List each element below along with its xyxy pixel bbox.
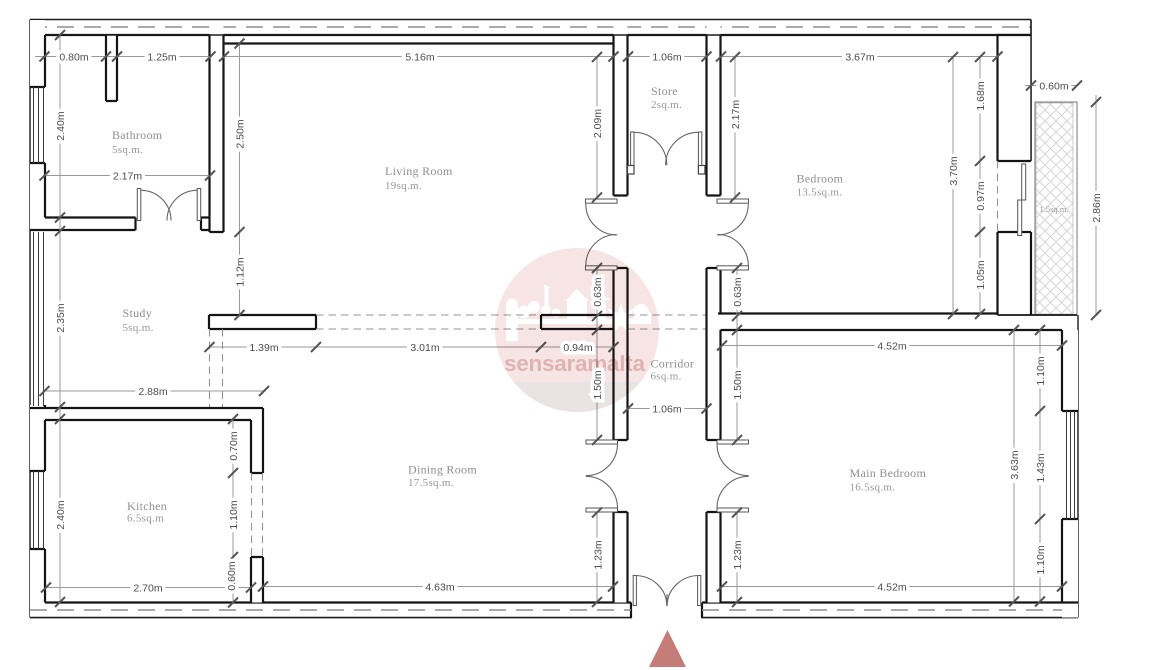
svg-text:1.12m: 1.12m	[234, 257, 246, 286]
svg-text:4.63m: 4.63m	[425, 581, 454, 593]
svg-text:Living Room: Living Room	[385, 164, 453, 178]
svg-text:Corridor: Corridor	[651, 357, 695, 371]
svg-text:1.25m: 1.25m	[147, 51, 176, 63]
svg-text:0.63m: 0.63m	[732, 277, 744, 306]
svg-text:0.60m: 0.60m	[1039, 80, 1068, 92]
svg-text:Bedroom: Bedroom	[797, 172, 844, 186]
svg-text:4.52m: 4.52m	[877, 340, 906, 352]
svg-text:2.50m: 2.50m	[234, 119, 246, 148]
svg-text:3.01m: 3.01m	[410, 342, 439, 354]
svg-text:2.88m: 2.88m	[138, 386, 167, 398]
svg-text:0.60m: 0.60m	[226, 561, 238, 590]
svg-text:1.06m: 1.06m	[652, 51, 681, 63]
svg-text:1.06m: 1.06m	[652, 403, 681, 415]
svg-text:1.10m: 1.10m	[1035, 356, 1047, 385]
svg-text:2.86m: 2.86m	[1091, 193, 1103, 222]
svg-text:0.80m: 0.80m	[59, 51, 88, 63]
svg-text:1.23m: 1.23m	[592, 540, 604, 569]
svg-text:19sq.m.: 19sq.m.	[385, 180, 422, 192]
svg-text:2.17m: 2.17m	[113, 170, 142, 182]
svg-text:3.63m: 3.63m	[1009, 450, 1021, 479]
svg-text:5sq.m.: 5sq.m.	[112, 144, 143, 156]
svg-text:1.43m: 1.43m	[1035, 453, 1047, 482]
svg-text:Store: Store	[651, 84, 678, 98]
svg-text:sensaramalta: sensaramalta	[504, 351, 646, 376]
svg-text:6sq.m.: 6sq.m.	[651, 371, 682, 383]
svg-text:5sq.m.: 5sq.m.	[123, 322, 154, 334]
svg-text:1.39m: 1.39m	[249, 342, 278, 354]
svg-text:2.70m: 2.70m	[133, 582, 162, 594]
svg-text:2.09m: 2.09m	[592, 109, 604, 138]
svg-text:1.68m: 1.68m	[975, 81, 987, 110]
svg-text:Kitchen: Kitchen	[127, 499, 167, 513]
svg-text:1.10m: 1.10m	[1035, 545, 1047, 574]
svg-text:1.5sq.m.: 1.5sq.m.	[1039, 204, 1068, 214]
svg-text:1.05m: 1.05m	[975, 260, 987, 289]
svg-text:Study: Study	[123, 306, 153, 320]
svg-text:0.97m: 0.97m	[975, 181, 987, 210]
svg-text:2.17m: 2.17m	[730, 100, 742, 129]
svg-text:3.70m: 3.70m	[948, 156, 960, 185]
svg-text:17.5sq.m.: 17.5sq.m.	[408, 477, 454, 489]
svg-text:Dining Room: Dining Room	[408, 463, 477, 477]
svg-text:2.40m: 2.40m	[55, 111, 67, 140]
svg-text:1.50m: 1.50m	[592, 370, 604, 399]
svg-text:13.5sq.m.: 13.5sq.m.	[797, 187, 843, 199]
svg-text:4.52m: 4.52m	[877, 581, 906, 593]
svg-text:1.23m: 1.23m	[732, 540, 744, 569]
svg-text:Main Bedroom: Main Bedroom	[850, 466, 927, 480]
svg-text:1.50m: 1.50m	[732, 370, 744, 399]
svg-text:16.5sq.m.: 16.5sq.m.	[850, 482, 896, 494]
svg-text:0.70m: 0.70m	[228, 431, 240, 460]
svg-text:6.5sq.m: 6.5sq.m	[127, 513, 164, 525]
svg-text:Bathroom: Bathroom	[112, 128, 163, 142]
svg-text:2.40m: 2.40m	[55, 500, 67, 529]
svg-text:2sq.m.: 2sq.m.	[651, 99, 682, 111]
svg-text:2.35m: 2.35m	[55, 303, 67, 332]
svg-text:5.16m: 5.16m	[405, 51, 434, 63]
svg-text:1.10m: 1.10m	[228, 500, 240, 529]
svg-text:0.94m: 0.94m	[563, 342, 592, 354]
svg-text:3.67m: 3.67m	[845, 51, 874, 63]
svg-text:0.63m: 0.63m	[592, 277, 604, 306]
